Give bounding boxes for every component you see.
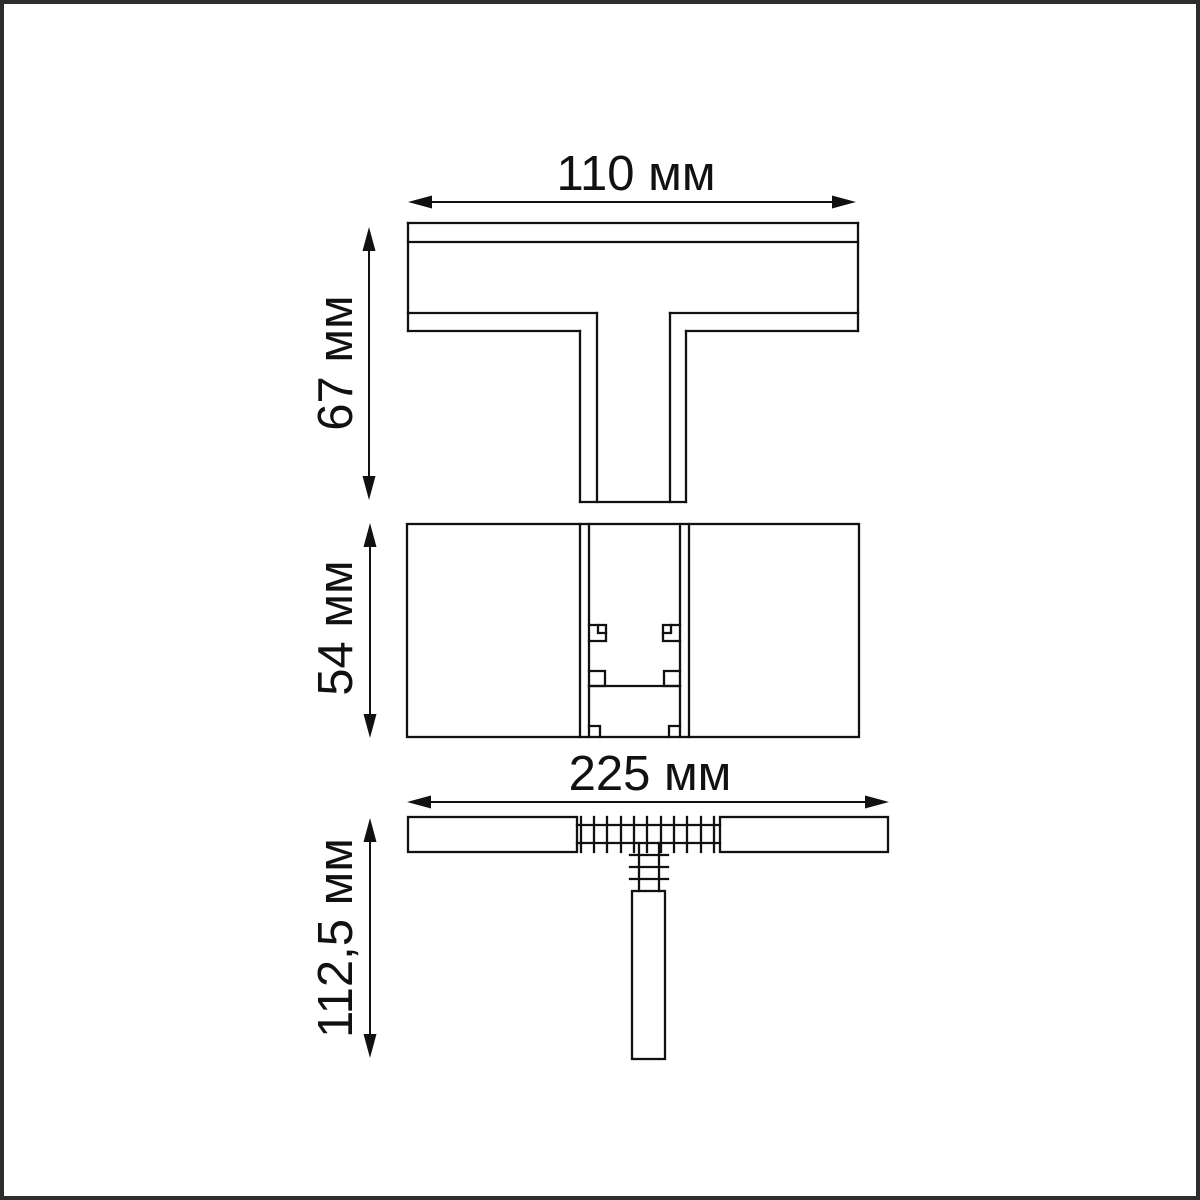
arrowhead-down — [364, 1034, 377, 1058]
dimension-top-width: 110 мм — [408, 147, 856, 209]
arrowhead-down — [364, 714, 377, 738]
view-t-profile — [408, 223, 858, 502]
clip-bottom-left — [589, 726, 600, 737]
dim-label-top-width: 110 мм — [556, 147, 715, 201]
dim-label-bottom-width: 225 мм — [569, 747, 732, 801]
dim-label-top-height: 67 мм — [309, 295, 363, 431]
dimension-bottom-width: 225 мм — [407, 747, 889, 809]
dim-label-bottom-height: 112,5 мм — [309, 838, 363, 1038]
arrowhead-left — [407, 796, 431, 809]
clip-mid-left — [589, 671, 605, 686]
track-right — [720, 817, 888, 852]
clip-upper-left-notch — [598, 625, 606, 633]
dim-label-middle-height: 54 мм — [309, 560, 363, 696]
clip-bottom-right — [669, 726, 680, 737]
arrowhead-up — [364, 818, 377, 842]
dimension-bottom-height: 112,5 мм — [309, 818, 377, 1058]
track-stem — [632, 891, 665, 1059]
arrowhead-down — [363, 476, 376, 500]
clip-mid-right — [664, 671, 680, 686]
clip-upper-right-notch — [663, 625, 671, 633]
drawing-canvas: 110 мм 67 мм — [0, 0, 1200, 1200]
plan-outline — [407, 524, 859, 737]
dimension-middle-height: 54 мм — [309, 523, 377, 738]
view-plan — [407, 524, 859, 737]
arrowhead-right — [832, 196, 856, 209]
arrowhead-left — [408, 196, 432, 209]
technical-drawing: 110 мм 67 мм — [0, 0, 1200, 1200]
track-left — [408, 817, 577, 852]
arrowhead-up — [363, 227, 376, 251]
arrowhead-right — [865, 796, 889, 809]
rib-ticks-horizontal — [581, 817, 714, 852]
rib-ticks-vertical — [630, 855, 668, 879]
dimension-top-height: 67 мм — [309, 227, 376, 500]
view-side-connector — [408, 817, 888, 1059]
arrowhead-up — [364, 523, 377, 547]
